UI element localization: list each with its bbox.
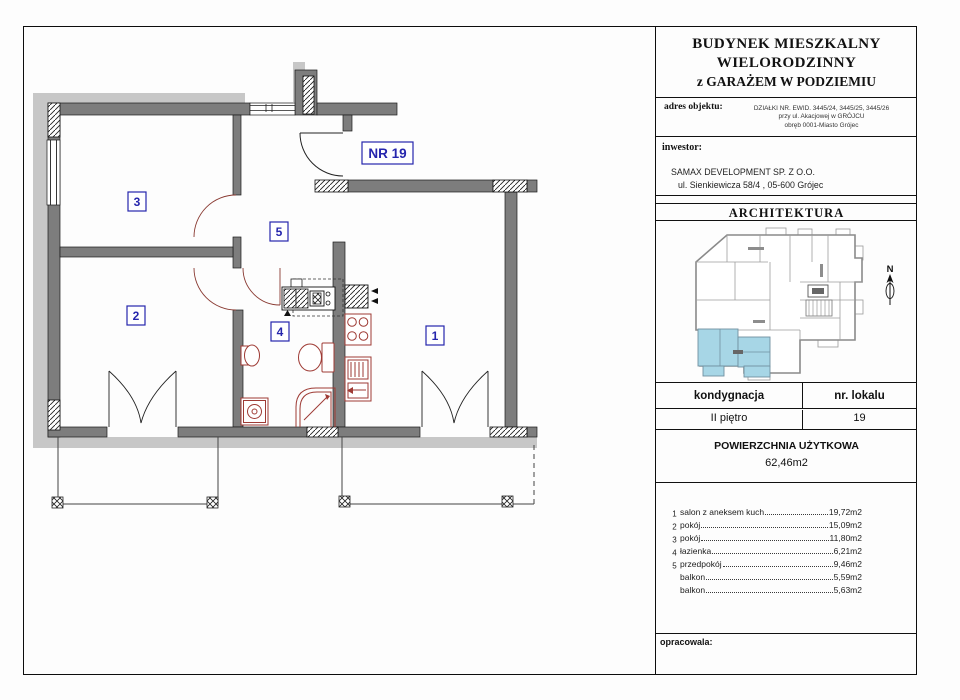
project-title: BUDYNEK MIESZKALNY WIELORODZINNY z GARAŻ…: [656, 26, 917, 98]
room-name: salon z aneksem kuch: [680, 507, 764, 517]
room-no: 3: [669, 536, 680, 545]
investor-address: ul. Sienkiewicza 58/4 , 05-600 Grójec: [678, 180, 823, 190]
dotted-leader: [712, 546, 832, 554]
section-divider: [656, 195, 917, 203]
usable-area-value: 62,46m2: [656, 457, 917, 469]
room-area: 6,21m2: [834, 546, 862, 556]
list-item: 4 łazienka 6,21m2: [669, 546, 862, 559]
room-no: 1: [669, 510, 680, 519]
title-line-1: BUDYNEK MIESZKALNY: [656, 35, 917, 54]
dotted-leader: [723, 559, 833, 567]
room-area: 15,09m2: [829, 520, 862, 530]
room-name: balkon: [680, 572, 705, 582]
address-line-2: przy ul. Akacjowej w GRÓJCU: [732, 113, 911, 121]
room-area: 5,63m2: [834, 585, 862, 595]
drawing-sheet: NR 19 3 2 5 4 1: [0, 0, 960, 700]
room-name: przedpokój: [680, 559, 722, 569]
key-plan-area: [656, 221, 917, 382]
title-block: BUDYNEK MIESZKALNY WIELORODZINNY z GARAŻ…: [655, 26, 917, 675]
title-line-3: z GARAŻEM W PODZIEMIU: [656, 73, 917, 91]
address-lines: DZIAŁKI NR. EWID. 3445/24, 3445/25, 3445…: [732, 105, 911, 130]
usable-area-label: POWIERZCHNIA UŻYTKOWA: [656, 440, 917, 452]
list-item: balkon 5,59m2: [669, 572, 862, 585]
prepared-by-label: opracowala:: [660, 637, 713, 647]
room-name: balkon: [680, 585, 705, 595]
list-item: 3 pokój 11,80m2: [669, 533, 862, 546]
list-item: 5 przedpokój 9,46m2: [669, 559, 862, 572]
room-name: pokój: [680, 533, 700, 543]
room-name: łazienka: [680, 546, 711, 556]
unit-number-value: 19: [803, 410, 916, 429]
address-label: adres objektu:: [664, 102, 723, 112]
room-area-list: 1 salon z aneksem kuch 19,72m2 2 pokój 1…: [656, 483, 917, 633]
room-area: 19,72m2: [829, 507, 862, 517]
list-item: balkon 5,63m2: [669, 585, 862, 598]
address-section: adres objektu: DZIAŁKI NR. EWID. 3445/24…: [656, 98, 917, 137]
investor-section: inwestor: SAMAX DEVELOPMENT SP. Z O.O. u…: [656, 137, 917, 195]
floor-unit-table: kondygnacja nr. lokalu II piętro 19: [656, 382, 917, 430]
dotted-leader: [701, 520, 828, 528]
floor-header: kondygnacja: [656, 383, 803, 409]
usable-area-section: POWIERZCHNIA UŻYTKOWA 62,46m2: [656, 430, 917, 483]
unit-number-header: nr. lokalu: [803, 383, 916, 409]
room-area: 11,80m2: [830, 533, 862, 543]
floor-value: II piętro: [656, 410, 803, 429]
dotted-leader: [706, 585, 833, 593]
dotted-leader: [701, 533, 828, 541]
room-no: 5: [669, 562, 680, 571]
dotted-leader: [706, 572, 833, 580]
prepared-by-section: opracowala:: [656, 633, 917, 675]
investor-label: inwestor:: [662, 142, 702, 153]
room-no: 2: [669, 523, 680, 532]
list-item: 2 pokój 15,09m2: [669, 520, 862, 533]
room-area: 5,59m2: [834, 572, 862, 582]
dotted-leader: [765, 507, 828, 515]
investor-name: SAMAX DEVELOPMENT SP. Z O.O.: [671, 167, 815, 177]
room-no: 4: [669, 549, 680, 558]
list-item: 1 salon z aneksem kuch 19,72m2: [669, 507, 862, 520]
room-area: 9,46m2: [834, 559, 862, 569]
title-line-2: WIELORODZINNY: [656, 54, 917, 73]
address-line-3: obręb 0001-Miasto Grójec: [732, 122, 911, 130]
room-name: pokój: [680, 520, 700, 530]
architecture-header: ARCHITEKTURA: [656, 203, 917, 221]
